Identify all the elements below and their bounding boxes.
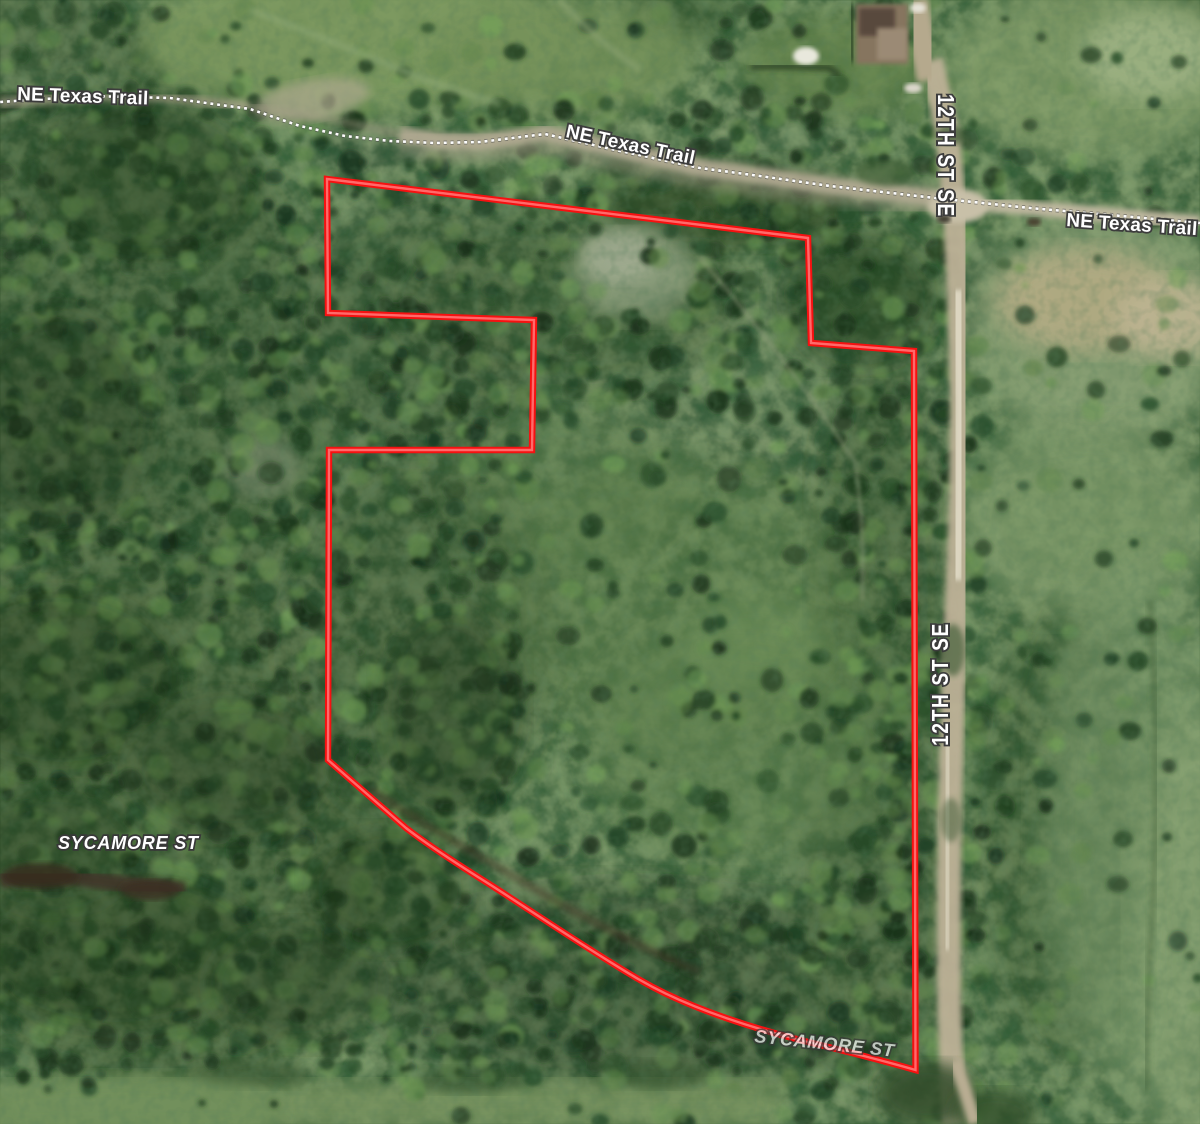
svg-text:SYCAMORE ST: SYCAMORE ST bbox=[58, 833, 200, 853]
svg-text:12TH ST SE: 12TH ST SE bbox=[932, 94, 957, 218]
svg-text:12TH ST SE: 12TH ST SE bbox=[928, 622, 953, 746]
